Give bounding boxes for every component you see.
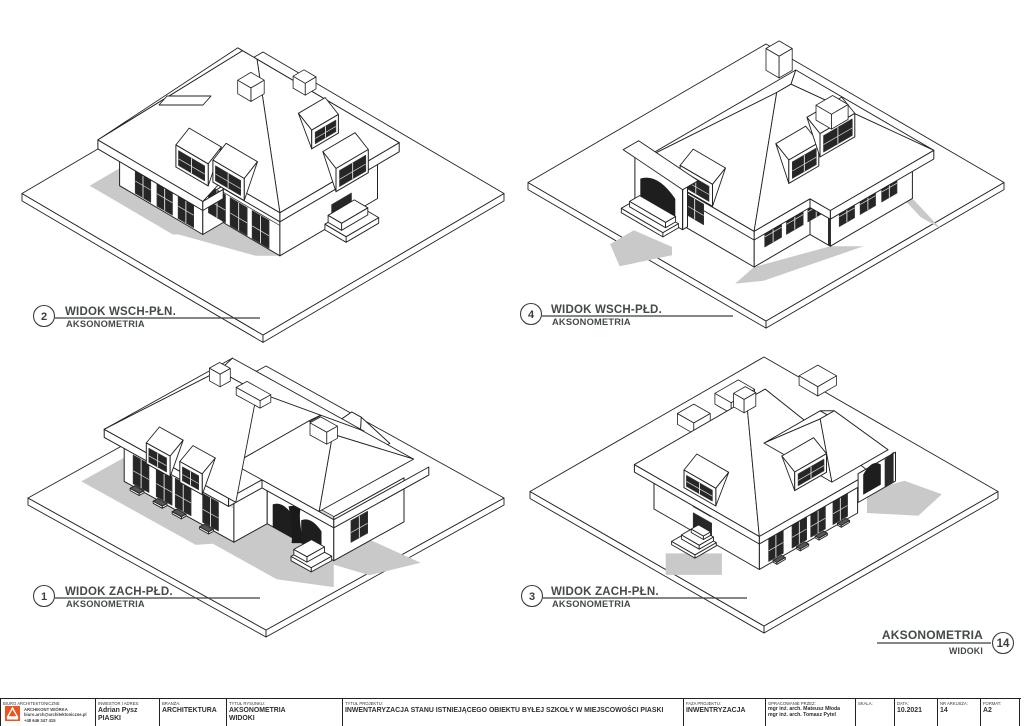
svg-text:AKSONOMETRIA: AKSONOMETRIA <box>552 317 631 327</box>
svg-text:AKSONOMETRIA: AKSONOMETRIA <box>882 628 983 642</box>
svg-text:1: 1 <box>41 591 47 603</box>
svg-text:WIDOK WSCH-PŁN.: WIDOK WSCH-PŁN. <box>65 306 176 318</box>
svg-text:AKSONOMETRIA: AKSONOMETRIA <box>66 599 145 609</box>
svg-text:2: 2 <box>41 311 47 323</box>
svg-text:WIDOKI: WIDOKI <box>949 646 983 656</box>
svg-text:WIDOK ZACH-PŁN.: WIDOK ZACH-PŁN. <box>551 586 659 598</box>
svg-text:WIDOK WSCH-PŁD.: WIDOK WSCH-PŁD. <box>551 304 662 316</box>
svg-text:14: 14 <box>997 638 1010 650</box>
svg-text:AKSONOMETRIA: AKSONOMETRIA <box>552 599 631 609</box>
svg-text:AKSONOMETRIA: AKSONOMETRIA <box>66 319 145 329</box>
svg-text:4: 4 <box>528 309 535 321</box>
svg-text:3: 3 <box>529 591 535 603</box>
svg-text:WIDOK ZACH-PŁD.: WIDOK ZACH-PŁD. <box>65 586 173 598</box>
